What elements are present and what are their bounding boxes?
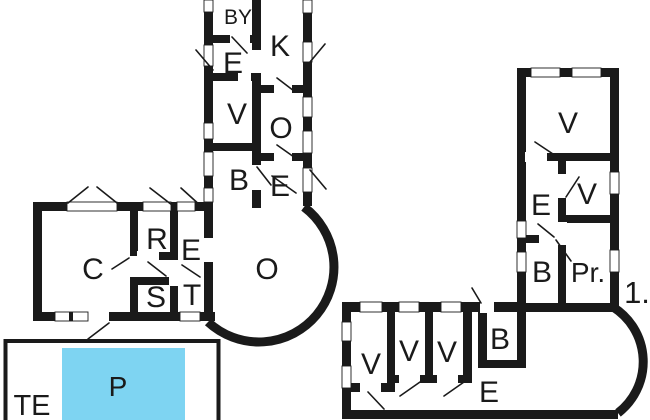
window-marker: [399, 302, 419, 312]
room-label-uv4: V: [399, 335, 419, 368]
terrace-label: TE: [13, 390, 50, 420]
window-marker: [517, 221, 526, 238]
window-marker: [204, 152, 213, 176]
window-marker: [204, 45, 213, 66]
window-marker: [67, 202, 117, 211]
window-marker: [303, 42, 312, 62]
room-label-k: K: [270, 30, 290, 63]
window-marker: [517, 252, 526, 272]
floor-number-label: 1.: [624, 275, 650, 310]
floor-plan-page: TE P BY: [0, 0, 650, 420]
window-post: [69, 312, 73, 321]
window-marker: [303, 131, 312, 153]
window-marker: [180, 312, 200, 321]
room-label-e3: E: [181, 234, 201, 267]
window-marker: [360, 302, 382, 312]
room-label-v1: V: [227, 98, 247, 131]
room-label-uv3: V: [361, 348, 381, 381]
room-label-r: R: [146, 223, 168, 256]
room-label-ue1: E: [531, 189, 551, 222]
room-label-ub1: B: [532, 256, 552, 289]
floor-plan-svg: TE P BY: [0, 0, 650, 420]
room-label-t: T: [183, 279, 201, 312]
pool-label: P: [109, 371, 128, 402]
room-label-ue2: E: [479, 376, 499, 409]
window-marker: [441, 302, 461, 312]
room-label-e1: E: [223, 47, 243, 80]
window-marker: [342, 366, 351, 388]
room-label-by: BY: [224, 6, 252, 29]
room-label-upr: Pr.: [571, 257, 605, 288]
window-marker: [204, 123, 213, 139]
window-marker: [342, 322, 351, 341]
room-label-o1: O: [269, 112, 292, 145]
room-label-c: C: [82, 253, 104, 286]
room-label-ub2: B: [490, 323, 510, 356]
room-label-o2: O: [255, 253, 278, 286]
room-label-uv5: V: [437, 336, 457, 369]
window-marker: [610, 172, 619, 194]
window-marker: [610, 250, 619, 272]
window-marker: [572, 68, 601, 77]
room-label-s: S: [146, 281, 166, 314]
window-marker: [303, 97, 312, 117]
room-label-uv2: V: [577, 178, 597, 211]
window-marker: [204, 188, 213, 202]
window-marker: [143, 202, 171, 211]
terrace-area: TE P: [6, 341, 219, 420]
room-label-uv1: V: [558, 107, 578, 140]
room-label-b1: B: [229, 164, 249, 197]
window-marker: [204, 0, 213, 12]
window-marker: [531, 68, 560, 77]
window-marker: [303, 0, 312, 13]
room-label-e2: E: [270, 170, 290, 203]
window-marker: [177, 202, 195, 211]
